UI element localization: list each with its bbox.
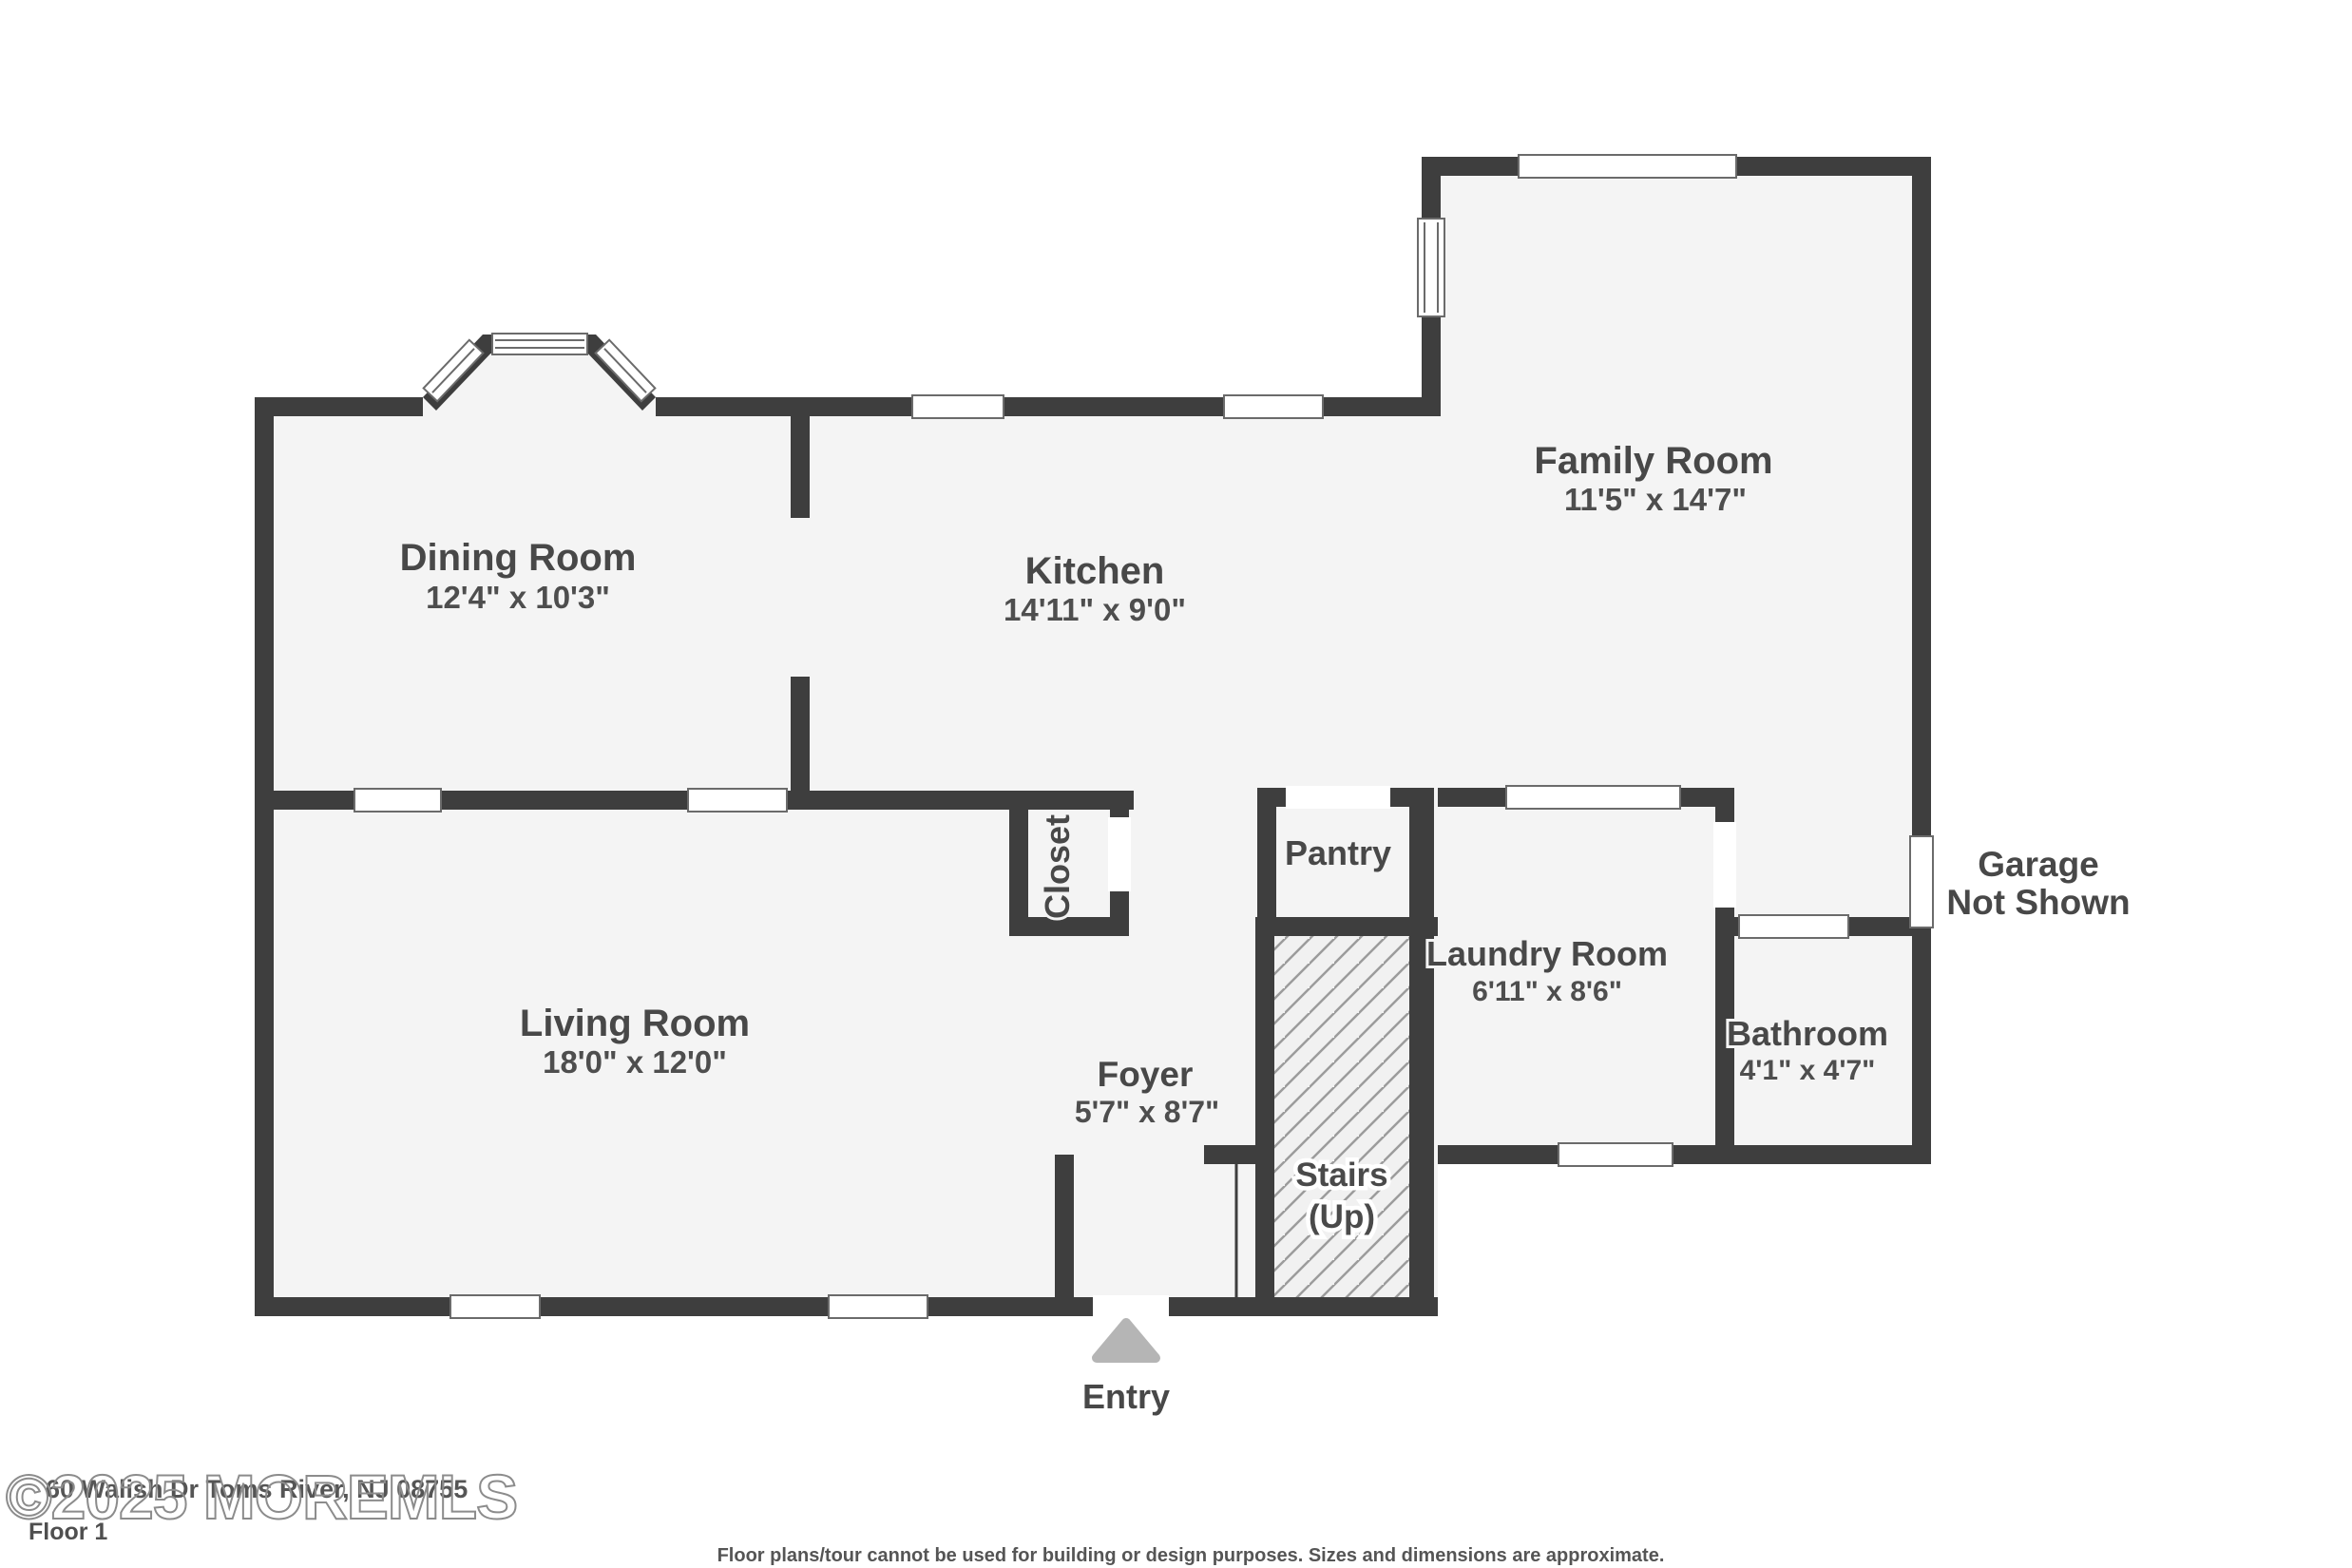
entry-opening bbox=[1093, 1295, 1169, 1318]
room-label-bathroom: Bathroom bbox=[1727, 1014, 1888, 1053]
window bbox=[829, 1295, 927, 1318]
garage-door-opening bbox=[1910, 836, 1933, 927]
wall-stairs-left bbox=[1255, 917, 1274, 1316]
room-label-pantry: Pantry bbox=[1285, 833, 1391, 872]
room-label-laundry: Laundry Room bbox=[1426, 934, 1668, 973]
room-dims-laundry: 6'11" x 8'6" bbox=[1472, 976, 1622, 1007]
room-label-foyer: Foyer bbox=[1098, 1055, 1194, 1094]
wall-pantry-left bbox=[1257, 788, 1276, 936]
window bbox=[912, 395, 1004, 418]
door-opening-laundry bbox=[1506, 786, 1680, 809]
floor-label: Floor 1 bbox=[29, 1519, 107, 1545]
room-dims-dining: 12'4" x 10'3" bbox=[426, 580, 610, 615]
room-dims-foyer: 5'7" x 8'7" bbox=[1075, 1095, 1219, 1129]
room-label-living: Living Room bbox=[520, 1003, 750, 1044]
door-opening-laundry-side bbox=[1713, 822, 1736, 908]
wall bbox=[255, 397, 274, 1316]
window bbox=[1519, 155, 1736, 178]
wall bbox=[1409, 788, 1434, 1316]
room-dims-family: 11'5" x 14'7" bbox=[1564, 482, 1747, 517]
room-dims-bathroom: 4'1" x 4'7" bbox=[1740, 1055, 1876, 1086]
wall bbox=[255, 397, 423, 416]
wall bbox=[1912, 157, 1931, 1164]
window bbox=[450, 1295, 540, 1318]
garage-note-line2: Not Shown bbox=[1946, 883, 2130, 922]
stairs-hatch bbox=[1274, 936, 1409, 1297]
door-opening-pantry bbox=[1286, 786, 1390, 809]
entry-label: Entry bbox=[1082, 1377, 1170, 1416]
room-label-kitchen: Kitchen bbox=[1025, 550, 1165, 592]
stairs-label-line2: (Up) bbox=[1309, 1198, 1375, 1235]
wall-kitchen-divider-upper bbox=[791, 416, 810, 518]
wall-kitchen-divider-lower bbox=[791, 677, 810, 791]
door-opening-closet bbox=[1108, 817, 1131, 891]
room-label-closet: Closet bbox=[1038, 814, 1077, 919]
stairs-label-line1: Stairs bbox=[1295, 1157, 1387, 1194]
wall-foyer-stub bbox=[1204, 1145, 1271, 1164]
door-opening-bathroom bbox=[1739, 915, 1848, 938]
wall-opening bbox=[354, 789, 441, 812]
wall bbox=[1438, 1145, 1931, 1164]
window bbox=[1418, 219, 1444, 316]
wall-foyer-west bbox=[1055, 1155, 1074, 1316]
garage-note-line1: Garage bbox=[1978, 845, 2099, 884]
wall-stairs-top bbox=[1255, 917, 1438, 936]
floor-area bbox=[255, 157, 1931, 1316]
entry-arrow-icon bbox=[1097, 1323, 1156, 1358]
room-label-family: Family Room bbox=[1534, 440, 1772, 482]
disclaimer-text: Floor plans/tour cannot be used for buil… bbox=[717, 1545, 1665, 1566]
wall-opening bbox=[688, 789, 787, 812]
window bbox=[1224, 395, 1323, 418]
room-label-dining: Dining Room bbox=[400, 537, 637, 579]
window bbox=[1558, 1143, 1673, 1166]
room-dims-living: 18'0" x 12'0" bbox=[543, 1044, 727, 1080]
room-dims-kitchen: 14'11" x 9'0" bbox=[1004, 592, 1186, 627]
floorplan-canvas: Dining Room 12'4" x 10'3" Kitchen 14'11"… bbox=[0, 0, 2352, 1568]
